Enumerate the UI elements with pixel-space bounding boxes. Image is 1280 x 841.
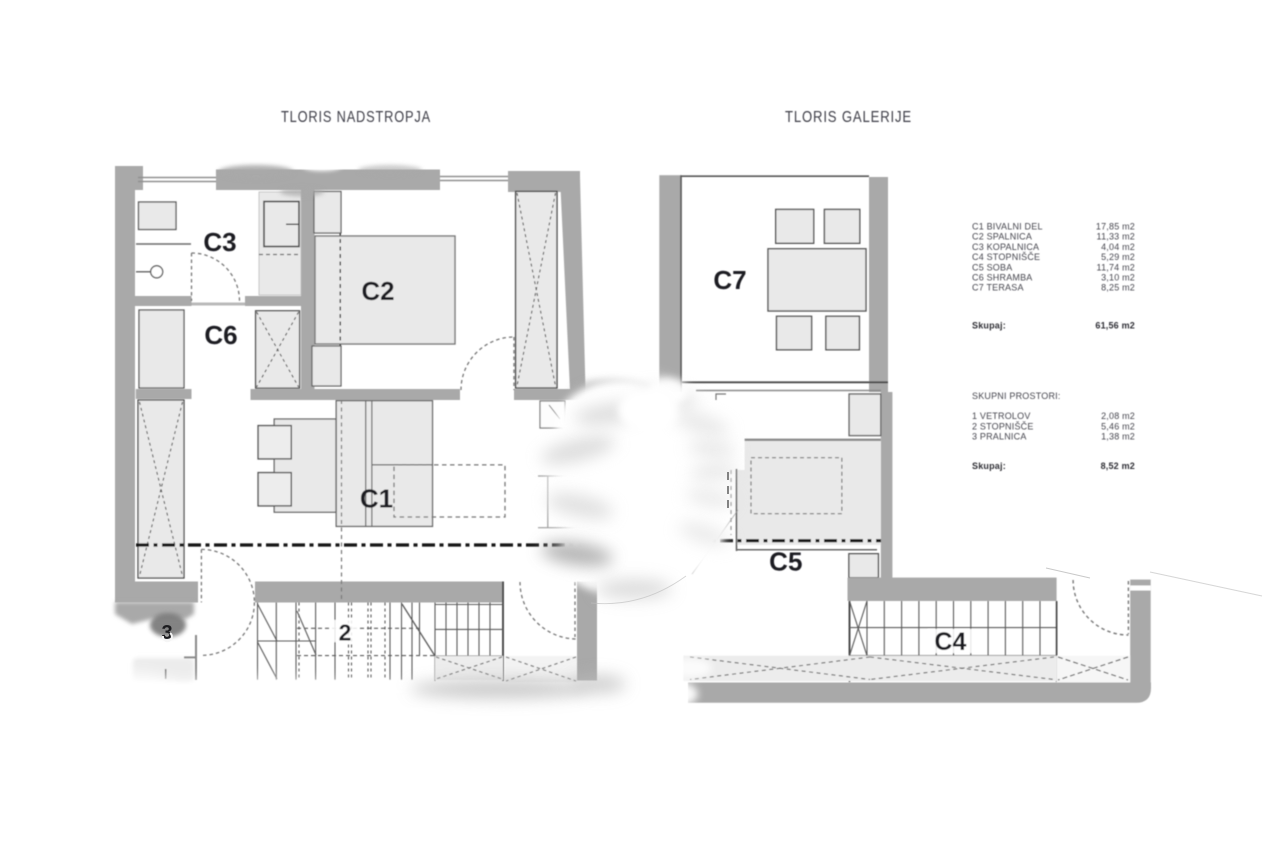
svg-text:C2 SPALNICA: C2 SPALNICA xyxy=(972,232,1032,242)
svg-text:C6 SHRAMBA: C6 SHRAMBA xyxy=(972,273,1033,283)
svg-text:11,33 m2: 11,33 m2 xyxy=(1097,232,1135,242)
svg-text:5,46 m2: 5,46 m2 xyxy=(1101,421,1135,431)
svg-text:3 PRALNICA: 3 PRALNICA xyxy=(972,432,1027,442)
svg-text:61,56 m2: 61,56 m2 xyxy=(1095,321,1135,331)
svg-text:C1: C1 xyxy=(360,484,393,514)
svg-text:2,08 m2: 2,08 m2 xyxy=(1101,411,1135,421)
svg-text:TLORIS NADSTROPJA: TLORIS NADSTROPJA xyxy=(281,109,431,126)
svg-text:2: 2 xyxy=(339,620,352,646)
svg-text:8,25 m2: 8,25 m2 xyxy=(1101,283,1135,293)
svg-text:11,74 m2: 11,74 m2 xyxy=(1097,262,1135,272)
svg-text:4,04 m2: 4,04 m2 xyxy=(1101,242,1135,252)
svg-text:5,29 m2: 5,29 m2 xyxy=(1101,252,1135,262)
svg-text:Skupaj:: Skupaj: xyxy=(972,321,1006,331)
svg-text:C5 SOBA: C5 SOBA xyxy=(972,262,1012,272)
svg-text:C7: C7 xyxy=(713,265,746,295)
svg-text:SKUPNI PROSTORI:: SKUPNI PROSTORI: xyxy=(972,391,1061,401)
svg-text:3,10 m2: 3,10 m2 xyxy=(1101,273,1135,283)
svg-text:C2: C2 xyxy=(361,276,394,306)
svg-text:17,85 m2: 17,85 m2 xyxy=(1096,222,1135,232)
svg-text:2 STOPNIŠČE: 2 STOPNIŠČE xyxy=(972,421,1034,431)
svg-text:1 VETROLOV: 1 VETROLOV xyxy=(972,411,1031,421)
svg-text:1,38 m2: 1,38 m2 xyxy=(1101,432,1135,442)
svg-text:C5: C5 xyxy=(769,547,802,577)
svg-text:C7 TERASA: C7 TERASA xyxy=(972,283,1024,293)
svg-text:C3 KOPALNICA: C3 KOPALNICA xyxy=(972,242,1039,252)
svg-text:C3: C3 xyxy=(203,227,236,257)
svg-text:C1 BIVALNI DEL: C1 BIVALNI DEL xyxy=(972,222,1043,232)
svg-text:C6: C6 xyxy=(204,320,237,350)
svg-text:8,52 m2: 8,52 m2 xyxy=(1101,461,1135,471)
svg-text:TLORIS GALERIJE: TLORIS GALERIJE xyxy=(785,109,912,126)
svg-text:Skupaj:: Skupaj: xyxy=(972,461,1006,471)
svg-text:C4: C4 xyxy=(934,628,966,656)
svg-text:C4 STOPNIŠČE: C4 STOPNIŠČE xyxy=(972,252,1040,262)
